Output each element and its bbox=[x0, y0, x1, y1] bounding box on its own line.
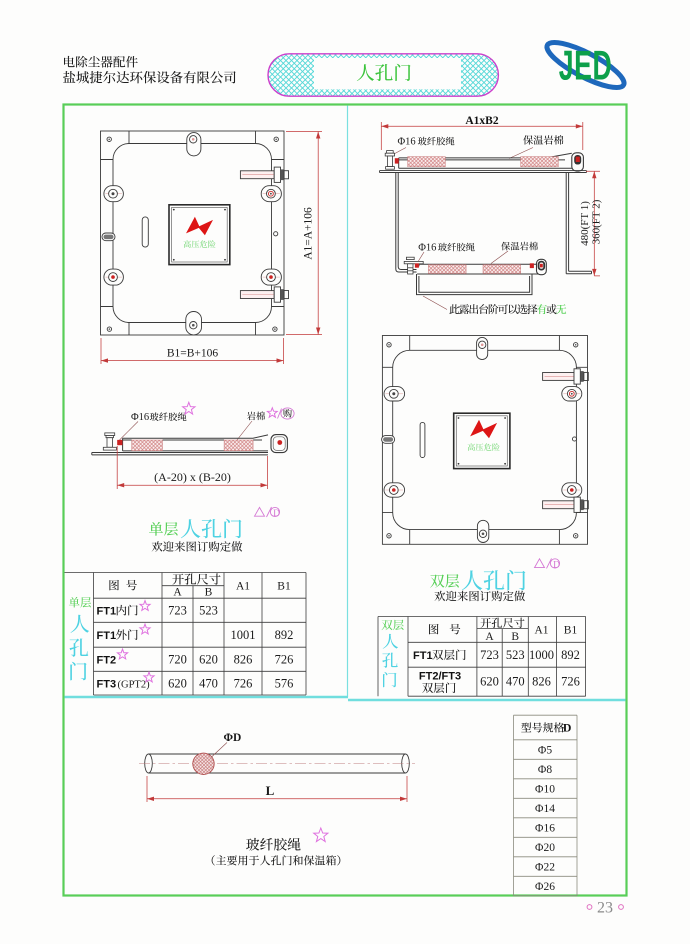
svg-text:826: 826 bbox=[532, 675, 551, 689]
svg-text:FT1: FT1 bbox=[413, 650, 433, 662]
svg-text:Φ16: Φ16 bbox=[398, 137, 416, 148]
svg-text:Φ10: Φ10 bbox=[535, 784, 555, 796]
svg-text:1000: 1000 bbox=[529, 648, 554, 662]
svg-text:B: B bbox=[511, 631, 519, 643]
svg-text:620: 620 bbox=[168, 676, 187, 690]
svg-text:A1xB2: A1xB2 bbox=[465, 115, 498, 127]
svg-text:A1: A1 bbox=[236, 580, 250, 592]
svg-text:D: D bbox=[553, 560, 560, 570]
svg-text:720: 720 bbox=[168, 653, 187, 667]
svg-text:FT2: FT2 bbox=[97, 654, 117, 666]
svg-text:Φ8: Φ8 bbox=[538, 764, 552, 776]
svg-text:FT1: FT1 bbox=[97, 630, 117, 642]
svg-text:723: 723 bbox=[480, 648, 499, 662]
svg-text:B: B bbox=[205, 587, 213, 599]
svg-text:B1=B+106: B1=B+106 bbox=[167, 348, 219, 360]
svg-text:Φ16: Φ16 bbox=[418, 243, 436, 254]
svg-text:726: 726 bbox=[275, 653, 294, 667]
svg-text:892: 892 bbox=[561, 648, 580, 662]
svg-text:A1: A1 bbox=[534, 624, 548, 636]
svg-text:FT3: FT3 bbox=[97, 678, 117, 690]
svg-text:Φ16: Φ16 bbox=[535, 823, 555, 835]
svg-text:JED: JED bbox=[559, 44, 612, 89]
svg-text:Φ26: Φ26 bbox=[535, 881, 555, 893]
svg-text:ΦD: ΦD bbox=[224, 732, 242, 744]
svg-text:D: D bbox=[563, 721, 572, 735]
svg-text:(GPT2): (GPT2) bbox=[118, 679, 151, 690]
svg-text:470: 470 bbox=[506, 675, 525, 689]
svg-text:Φ22: Φ22 bbox=[535, 862, 555, 874]
svg-text:892: 892 bbox=[275, 628, 294, 642]
svg-text:470: 470 bbox=[199, 676, 218, 690]
svg-text:23: 23 bbox=[597, 900, 613, 917]
svg-text:360(FT 2): 360(FT 2) bbox=[591, 199, 603, 244]
svg-text:723: 723 bbox=[168, 604, 187, 618]
svg-text:FT1: FT1 bbox=[97, 605, 117, 617]
svg-text:480(FT 1): 480(FT 1) bbox=[579, 201, 591, 246]
svg-text:1001: 1001 bbox=[231, 628, 256, 642]
svg-text:Φ16: Φ16 bbox=[131, 412, 149, 423]
svg-text:B1: B1 bbox=[277, 580, 291, 592]
svg-text:Φ20: Φ20 bbox=[535, 842, 555, 854]
svg-text:523: 523 bbox=[199, 604, 218, 618]
svg-text:620: 620 bbox=[480, 675, 499, 689]
svg-text:523: 523 bbox=[506, 648, 525, 662]
svg-text:620: 620 bbox=[199, 653, 218, 667]
svg-text:Φ5: Φ5 bbox=[538, 745, 552, 757]
svg-text:726: 726 bbox=[234, 676, 253, 690]
svg-text:Φ14: Φ14 bbox=[535, 803, 555, 815]
svg-text:B1: B1 bbox=[564, 624, 578, 636]
svg-text:D: D bbox=[273, 509, 280, 519]
svg-text:576: 576 bbox=[275, 676, 294, 690]
svg-text:826: 826 bbox=[234, 653, 253, 667]
svg-text:A: A bbox=[173, 587, 182, 599]
svg-text:A1=A+106: A1=A+106 bbox=[303, 207, 315, 260]
svg-text:(A-20) x (B-20): (A-20) x (B-20) bbox=[154, 470, 231, 484]
svg-text:726: 726 bbox=[561, 675, 580, 689]
svg-text:FT2/FT3: FT2/FT3 bbox=[419, 670, 461, 682]
svg-text:A: A bbox=[485, 631, 494, 643]
svg-text:L: L bbox=[266, 783, 275, 798]
